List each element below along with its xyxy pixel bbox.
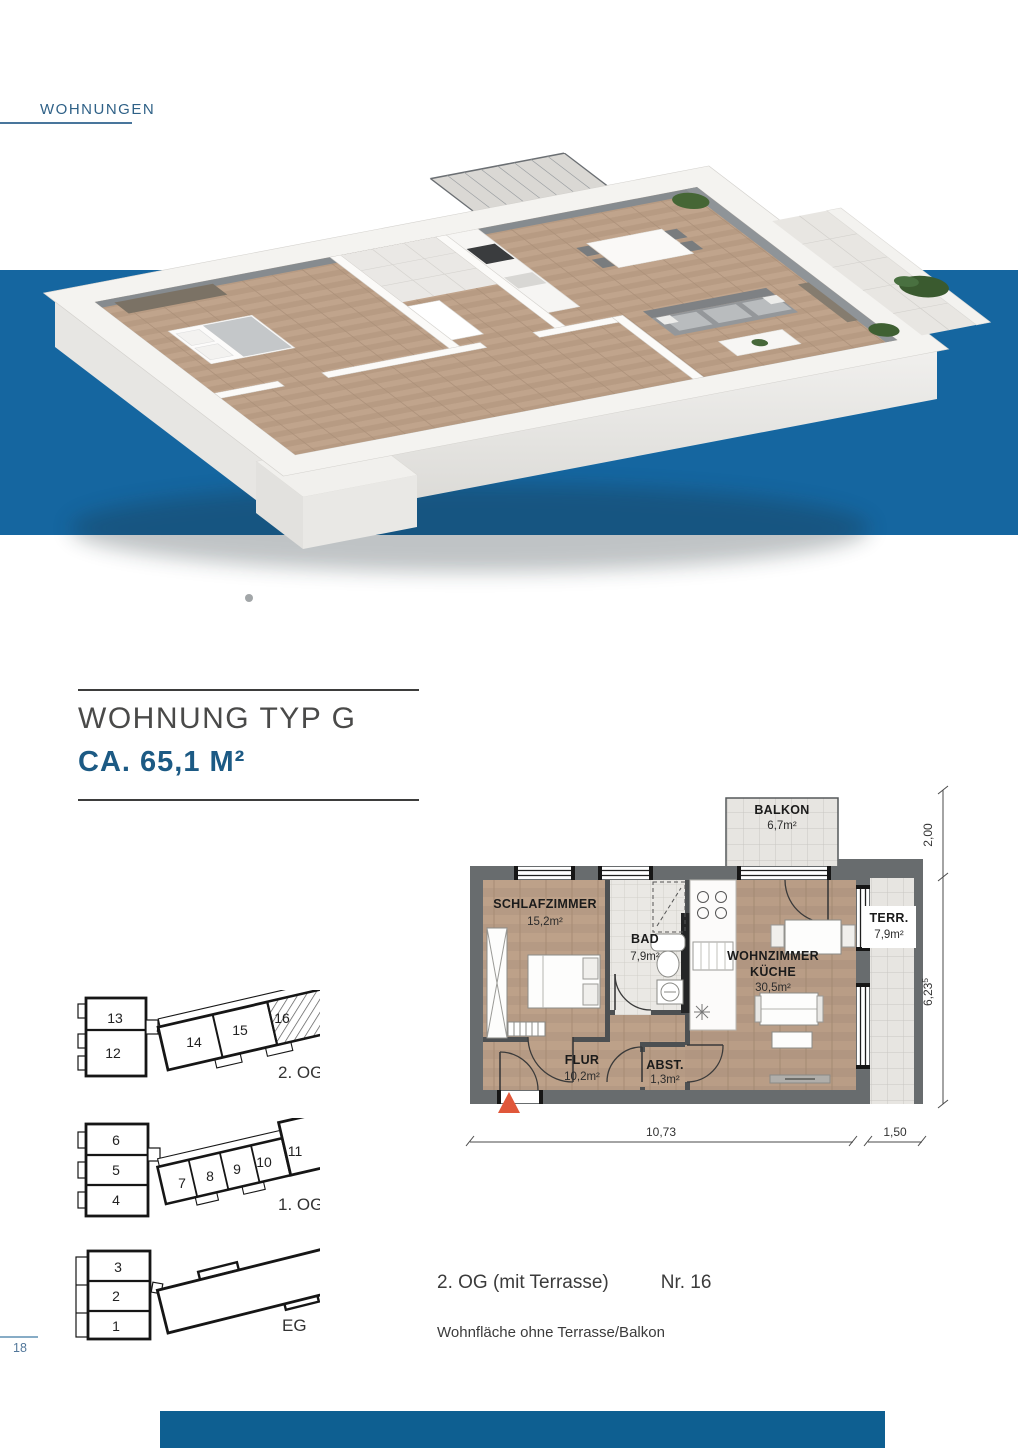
unit-8: 8 [206,1168,214,1184]
building-shadow [70,484,870,572]
abst-label: ABST. [646,1058,684,1072]
level-label-eg: EG [282,1316,307,1335]
miniplan-1og: 6 5 4 7 8 9 10 11 1. OG [70,1118,320,1223]
schlafzimmer-area: 15,2m² [527,916,563,928]
unit-10: 10 [256,1154,272,1170]
balcony-label: BALKON [754,803,809,817]
unit-2: 2 [112,1288,120,1304]
balcony-area: 6,7m² [767,820,797,832]
unit-7: 7 [178,1175,186,1191]
decorative-dot [245,594,253,602]
section-underline [0,122,132,124]
unit-6: 6 [112,1132,120,1148]
section-label: WOHNUNGEN [40,101,155,118]
flur-label: FLUR [565,1053,600,1067]
floor-info-row: 2. OG (mit Terrasse) Nr. 16 [437,1272,711,1294]
brochure-page: WOHNUNGEN [0,0,1024,1448]
terrasse-area: 7,9m² [874,929,904,941]
dim-terrace-width: 1,50 [883,1125,907,1139]
miniplan-2og: 13 12 14 15 16 2. OG [70,990,320,1090]
level-label-2og: 2. OG [278,1063,320,1082]
pagenum-rule [0,1336,38,1338]
unit-15: 15 [232,1022,248,1038]
unit-16: 16 [274,1010,290,1026]
unit-number-text: Nr. 16 [661,1272,712,1294]
wohnzimmer-label: WOHNZIMMER [727,949,819,963]
unit-12: 12 [105,1045,121,1061]
unit-9: 9 [233,1161,241,1177]
hero-3d-rendering [0,130,1024,690]
unit-13: 13 [107,1010,123,1026]
dim-bottom-width: 10,73 [646,1125,676,1139]
kueche-label: KÜCHE [750,964,796,979]
bad-label: BAD [631,932,659,946]
apartment-area: CA. 65,1 M² [78,746,245,779]
terrasse-label: TERR. [870,911,909,925]
unit-1: 1 [112,1318,120,1334]
page-number: 18 [13,1341,27,1355]
unit-5: 5 [112,1162,120,1178]
area-note: Wohnfläche ohne Terrasse/Balkon [437,1324,665,1341]
dim-right-height: 6,235 [920,978,935,1006]
unit-3: 3 [114,1259,122,1275]
wohnzimmer-area: 30,5m² [755,982,791,994]
abst-area: 1,3m² [650,1074,680,1086]
title-rule-top [78,689,419,691]
dim-balcony-depth: 2,00 [921,823,935,847]
miniplan-eg: 3 2 1 EG [70,1245,320,1345]
flur-area: 10,2m² [564,1071,600,1083]
floorplan-svg: BALKON 6,7m² [455,780,970,1165]
terrace-label-group: TERR. 7,9m² [862,906,916,948]
level-label-1og: 1. OG [278,1195,320,1214]
apartment-type-title: WOHNUNG TYP G [78,702,356,736]
title-rule-bottom [78,799,419,801]
bad-area: 7,9m² [630,951,660,963]
schlafzimmer-label: SCHLAFZIMMER [493,897,597,911]
floor-info-text: 2. OG (mit Terrasse) [437,1272,609,1294]
unit-4: 4 [112,1192,120,1208]
unit-11: 11 [288,1143,303,1159]
unit-14: 14 [186,1034,202,1050]
bottom-accent-bar [160,1411,885,1448]
